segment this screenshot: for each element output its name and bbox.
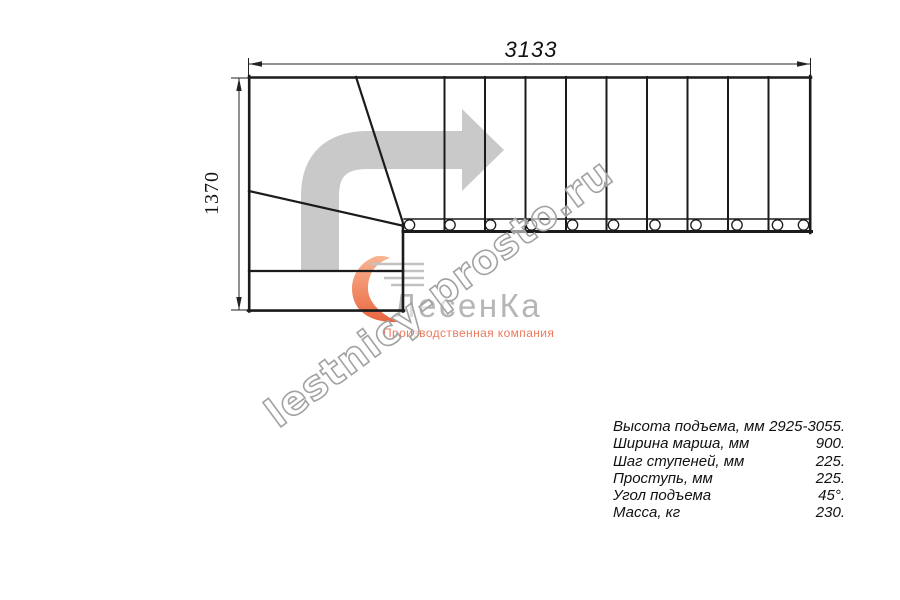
dim-arrow-left-icon [249, 61, 262, 66]
dim-left-value: 1370 [201, 171, 223, 215]
spec-label: Угол подъема [613, 487, 711, 504]
spec-row: Масса, кг 230. [613, 504, 845, 521]
spec-row: Шаг ступеней, мм 225. [613, 453, 845, 470]
spec-value: 230. [816, 504, 845, 521]
spec-value: 2925-3055. [769, 418, 845, 435]
dim-arrow-down-icon [236, 297, 241, 310]
dimension-left: 1370 [201, 78, 250, 310]
spec-value: 900. [816, 435, 845, 452]
spec-row: Проступь, мм 225. [613, 470, 845, 487]
dim-arrow-right-icon [797, 61, 810, 66]
spec-value: 45°. [818, 487, 845, 504]
direction-arrow-body [320, 150, 464, 271]
spec-label: Масса, кг [613, 504, 680, 521]
spec-table: Высота подъема, мм 2925-3055. Ширина мар… [613, 418, 845, 522]
direction-arrow-head [462, 109, 504, 191]
spec-label: Шаг ступеней, мм [613, 453, 744, 470]
spec-label: Ширина марша, мм [613, 435, 749, 452]
spec-value: 225. [816, 453, 845, 470]
stair-drawing-page: ЛесенКа Производственная компания [0, 0, 900, 600]
dim-top-value: 3133 [505, 37, 558, 62]
spec-row: Высота подъема, мм 2925-3055. [613, 418, 845, 435]
spec-label: Проступь, мм [613, 470, 713, 487]
dimension-top: 3133 [249, 37, 811, 75]
spec-value: 225. [816, 470, 845, 487]
spec-label: Высота подъема, мм [613, 418, 765, 435]
dim-arrow-up-icon [236, 78, 241, 91]
spec-row: Угол подъема 45°. [613, 487, 845, 504]
spec-row: Ширина марша, мм 900. [613, 435, 845, 452]
